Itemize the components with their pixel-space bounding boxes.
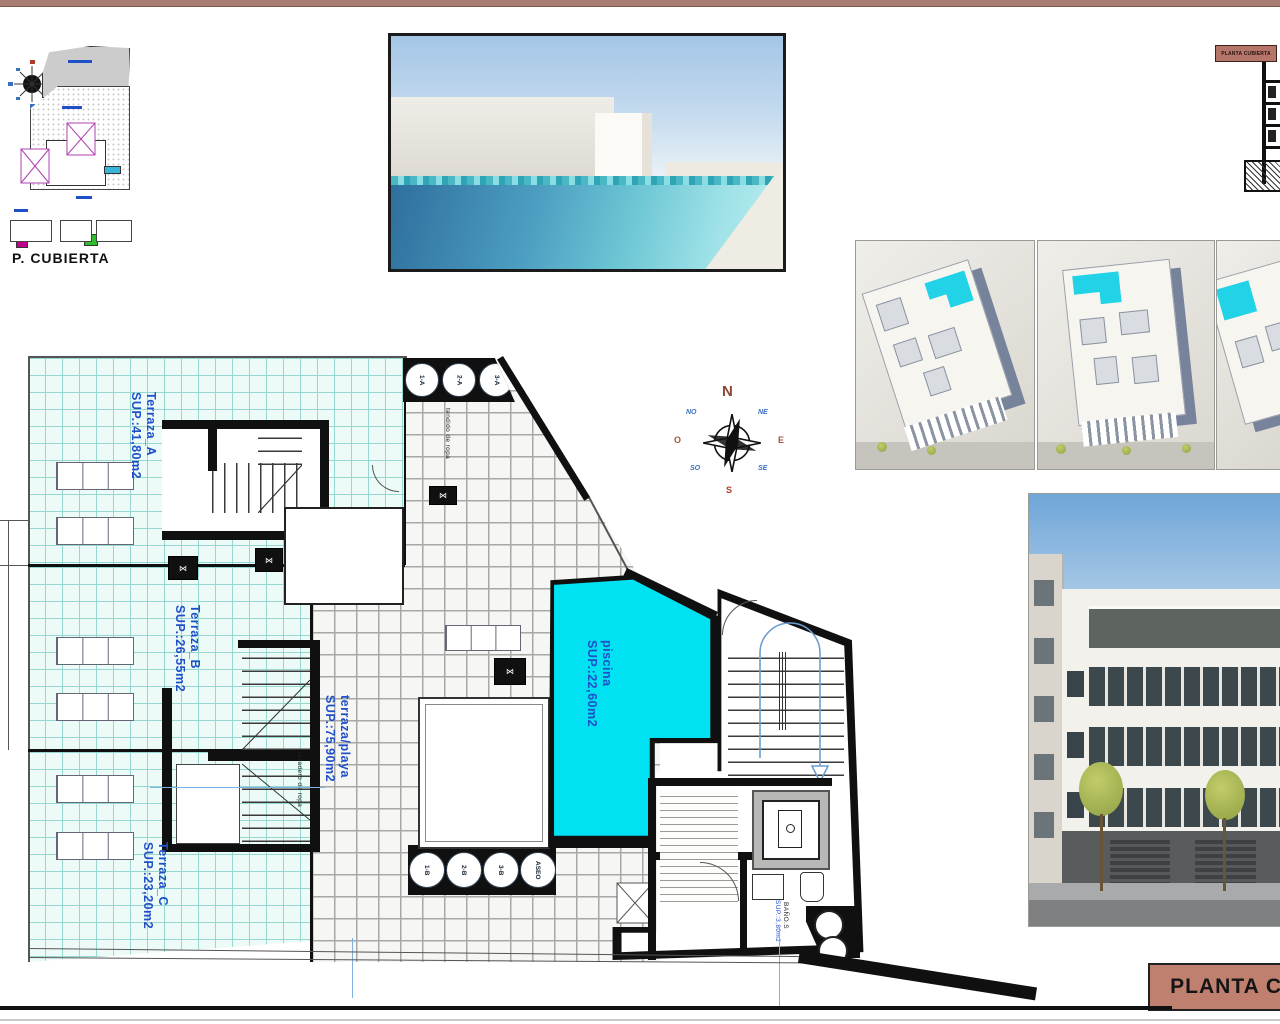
pool-render-photo xyxy=(388,33,786,272)
clothesline-label: tendido de ropa xyxy=(444,408,451,508)
tree-trunk xyxy=(1100,814,1103,892)
sun-lounger xyxy=(56,832,134,860)
stair-landing xyxy=(176,764,240,844)
label-dash xyxy=(14,209,28,212)
neighbor-windows xyxy=(1034,580,1054,865)
port-label: 2-B xyxy=(460,865,467,875)
port-circle: 2-A xyxy=(442,363,476,397)
axon-render-1 xyxy=(855,240,1035,470)
plan-outline-top xyxy=(28,356,407,358)
terrace-b-label: Terraza_B SUP.:26,55m2 xyxy=(172,605,202,730)
terrace-area: SUP.:41,80m2 xyxy=(128,392,143,517)
terrace-area: SUP.:26,55m2 xyxy=(172,605,187,730)
rooftop-pool xyxy=(1216,281,1257,321)
tree-trunk xyxy=(1223,818,1226,891)
terrace-name: Terraza_C xyxy=(155,842,170,967)
guide-line xyxy=(779,928,780,1008)
pool-label: piscina SUP.:22,60m2 xyxy=(584,640,614,780)
axon-render-3 xyxy=(1216,240,1280,470)
plan-outline-left xyxy=(28,356,30,962)
sun-lounger xyxy=(56,517,134,545)
sun-lounger xyxy=(56,693,134,721)
port-label: 1-B xyxy=(423,865,430,875)
port-circle: 3-B xyxy=(483,852,519,888)
rooftop-pool xyxy=(924,270,973,313)
drawing-sheet: P. CUBIERTA PLANTA CUBIERTA xyxy=(0,0,1280,1024)
toilet xyxy=(800,872,824,902)
section-floor xyxy=(1262,146,1280,149)
beach-name: terraza/playa xyxy=(337,695,352,835)
site-plan: P. CUBIERTA xyxy=(4,44,164,284)
bottom-gray-line xyxy=(0,1019,1280,1021)
dimension-line xyxy=(0,565,28,566)
port-label: 2-A xyxy=(455,375,462,385)
terrace-name: Terraza_B xyxy=(187,605,202,730)
compass-star-icon xyxy=(700,411,764,475)
render-left-wall xyxy=(391,97,614,183)
compass-rose: N NE E SE S SO O NO xyxy=(672,385,792,505)
port-circle: ASEO xyxy=(520,852,556,888)
street-tree xyxy=(1079,762,1123,816)
label-dash xyxy=(62,106,82,109)
terrace-a-label: Terraza_A SUP.:41,80m2 xyxy=(128,392,158,517)
section-floor xyxy=(1262,124,1280,127)
skylight-box-icon xyxy=(66,122,96,156)
planta-cubierta-tag: PLANTA CUBIERTA xyxy=(1215,45,1277,62)
laundry-label: lavadero de ropa xyxy=(296,752,303,862)
render-waterline xyxy=(391,176,783,185)
section-floor xyxy=(1262,102,1280,105)
port-label: 3-A xyxy=(493,375,500,385)
pool-area: SUP.:22,60m2 xyxy=(584,640,599,780)
ports-band-top: 1-A 2-A 3-A xyxy=(403,358,515,402)
sun-lounger xyxy=(56,637,134,665)
service-box: ⋈ xyxy=(429,486,457,505)
guide-line xyxy=(352,938,353,998)
section-line xyxy=(150,787,325,788)
stair-a-inner-wall xyxy=(208,429,217,471)
skylight-square xyxy=(418,697,550,849)
dimension-line xyxy=(8,520,9,750)
rooftop-pool xyxy=(1072,271,1121,307)
compass-o: O xyxy=(674,435,681,445)
port-label: 1-A xyxy=(418,375,425,385)
compass-e: E xyxy=(778,435,784,445)
section-thumbnail: PLANTA CUBIERTA xyxy=(1188,40,1280,190)
building-mass xyxy=(862,259,1013,430)
garage-door xyxy=(1110,840,1170,883)
building-mass xyxy=(1062,259,1185,426)
bottom-rule xyxy=(0,1006,1172,1010)
stair-a-diagonal xyxy=(258,429,302,513)
beach-terrace-label: terraza/playa SUP.:75,90m2 xyxy=(322,695,352,835)
ports-band-bottom: 1-B 2-B 3-B ASEO xyxy=(408,845,556,895)
side-window xyxy=(1067,671,1085,697)
port-label: 3-B xyxy=(497,865,504,875)
section-footing-hatch xyxy=(1244,160,1280,192)
dimension-line xyxy=(0,520,28,521)
label-dash xyxy=(76,196,92,199)
window-band xyxy=(1089,727,1280,766)
site-plan-bay xyxy=(96,220,132,242)
site-plan-title: P. CUBIERTA xyxy=(12,250,110,266)
section-window xyxy=(1268,86,1276,98)
compass-ne: NE xyxy=(758,409,768,416)
title-block-label: PLANTA C xyxy=(1170,975,1280,999)
road xyxy=(1029,900,1280,926)
window-band xyxy=(1089,667,1280,706)
port-label: ASEO xyxy=(534,861,541,879)
port-circle: 1-B xyxy=(409,852,445,888)
compass-n: N xyxy=(722,383,733,400)
legend-chip xyxy=(104,166,121,174)
top-accent-bar xyxy=(0,0,1280,7)
compass-se: SE xyxy=(758,465,767,472)
service-box: ⋈ xyxy=(168,556,198,580)
building-mass xyxy=(1216,259,1280,425)
sun-lounger xyxy=(56,775,134,803)
interior-wall xyxy=(650,778,832,786)
plan-bottom-wall xyxy=(798,950,1037,1000)
sidewalk xyxy=(1029,883,1280,900)
section-window xyxy=(1268,108,1276,120)
port-circle: 2-B xyxy=(446,852,482,888)
render-center-cube xyxy=(595,113,652,183)
skylight-box-icon xyxy=(20,148,50,184)
section-floor xyxy=(1262,80,1280,83)
sun-lounger xyxy=(56,462,134,490)
site-plan-bay xyxy=(10,220,52,242)
pool-name: piscina xyxy=(599,640,614,780)
sun-lounger xyxy=(445,625,521,651)
elevator-shaft xyxy=(752,790,830,870)
interior-wall xyxy=(740,856,747,956)
service-box: ⋈ xyxy=(255,548,283,572)
beach-area: SUP.:75,90m2 xyxy=(322,695,337,835)
stair-a-bulkhead-room xyxy=(284,507,404,605)
port-circle: 1-A xyxy=(405,363,439,397)
label-dash xyxy=(68,60,92,63)
service-box: ⋈ xyxy=(494,658,526,685)
section-window xyxy=(1268,130,1276,142)
axon-render-2 xyxy=(1037,240,1215,470)
compass-no: NO xyxy=(686,409,697,416)
title-block: PLANTA C xyxy=(1148,963,1280,1011)
bathroom: BAÑO.S SUP.:3,80m2 xyxy=(748,866,860,958)
terrace-name: Terraza_A xyxy=(143,392,158,517)
site-plan-bay xyxy=(60,220,92,242)
interior-wall xyxy=(648,778,656,960)
compass-s: S xyxy=(726,485,732,495)
sink xyxy=(752,874,784,900)
roof-terrace-band xyxy=(1089,606,1280,648)
bath-label: BAÑO.S xyxy=(782,902,789,954)
side-window xyxy=(1067,732,1085,758)
facade-render-photo xyxy=(1028,493,1280,927)
compass-so: SO xyxy=(690,465,700,472)
